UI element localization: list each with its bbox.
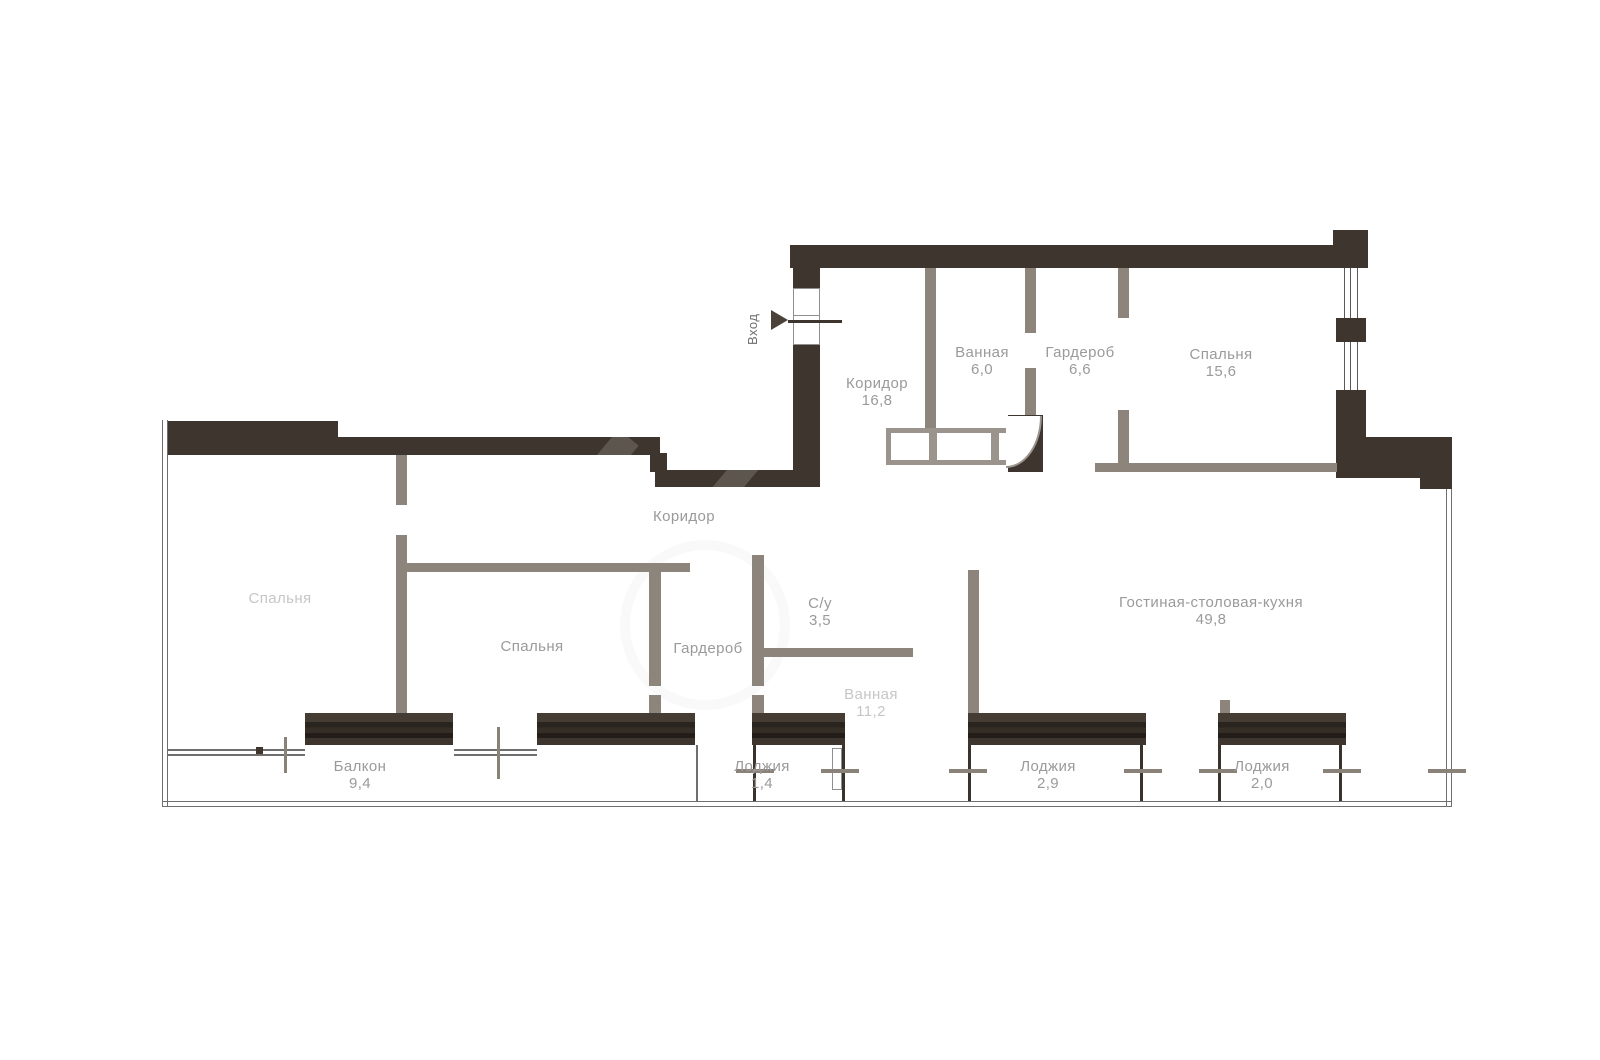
- room-name: Спальня: [500, 638, 563, 655]
- room-label-corridor-lower: Коридор: [653, 508, 715, 525]
- room-label-loggia-2: Лоджия 2,9: [1020, 758, 1076, 792]
- room-label-wc: С/у 3,5: [808, 595, 832, 629]
- closet-divider: [929, 433, 937, 460]
- window-lines: [1344, 268, 1345, 318]
- wall-wardrobe-right: [752, 695, 764, 713]
- wall-stub: [1220, 700, 1230, 713]
- room-label-wardrobe-upper: Гардероб 6,6: [1045, 344, 1114, 378]
- wall-bedroom-divider: [396, 535, 407, 715]
- room-name: С/у: [808, 595, 832, 612]
- room-name: Коридор: [653, 508, 715, 525]
- window-wall-balcony: [305, 713, 453, 745]
- window-lines: [1344, 342, 1345, 390]
- room-label-bathroom-upper: Ванная 6,0: [955, 344, 1009, 378]
- room-name: Гостиная-столовая-кухня: [1119, 594, 1303, 611]
- room-name: Ванная: [844, 686, 898, 703]
- floor-plan: Вход Коридор 16,8 Ванная 6,0: [0, 0, 1600, 1060]
- room-label-living: Гостиная-столовая-кухня 49,8: [1119, 594, 1303, 628]
- room-area: 1,4: [734, 775, 790, 792]
- boundary-bottom: [162, 806, 1452, 807]
- wall-wardrobe-left: [649, 695, 661, 713]
- room-area: 49,8: [1119, 611, 1303, 628]
- room-name: Лоджия: [734, 758, 790, 775]
- glazing-post: [256, 747, 263, 754]
- wall-bedroom-divider: [396, 455, 407, 505]
- room-label-bedroom-2: Спальня: [500, 638, 563, 655]
- room-area: 2,9: [1020, 775, 1076, 792]
- entrance-label: Вход: [745, 293, 760, 345]
- boundary-left: [162, 420, 163, 806]
- window-lines: [1357, 268, 1358, 318]
- wall-wardrobe-bedroom: [1118, 268, 1129, 318]
- room-label-loggia-3: Лоджия 2,0: [1234, 758, 1290, 792]
- wall-top-lower: [168, 421, 338, 455]
- room-area: 9,4: [334, 775, 387, 792]
- room-name: Балкон: [334, 758, 387, 775]
- wall-wardrobe-bedroom: [1118, 410, 1129, 465]
- wall-pier-right: [1336, 318, 1366, 342]
- glazing-line: [454, 749, 537, 751]
- closet-divider: [991, 433, 999, 460]
- room-label-balcony: Балкон 9,4: [334, 758, 387, 792]
- room-name: Ванная: [955, 344, 1009, 361]
- room-label-bathroom-lower: Ванная 11,2: [844, 686, 898, 720]
- room-name: Гардероб: [1045, 344, 1114, 361]
- watermark-circle: [620, 540, 790, 710]
- room-area: 6,0: [955, 361, 1009, 378]
- wall-step: [650, 453, 667, 472]
- window-wall-loggia2: [968, 713, 1146, 745]
- wall-living-west: [968, 570, 979, 713]
- wall-left-upper: [793, 343, 820, 487]
- window-wall-loggia1: [752, 713, 845, 745]
- wall-corner-right: [1336, 390, 1366, 440]
- room-label-wardrobe-lower: Гардероб: [673, 640, 742, 657]
- wall-corner-right2: [1420, 437, 1452, 489]
- tick-mark: [1428, 769, 1466, 773]
- room-area: 11,2: [844, 703, 898, 720]
- tick-mark: [284, 737, 287, 773]
- tick-mark: [1199, 769, 1237, 773]
- room-area: 2,0: [1234, 775, 1290, 792]
- wall-corridor-bath: [925, 268, 936, 432]
- boundary-right: [1446, 480, 1447, 807]
- wall-band-right: [1336, 437, 1426, 478]
- window-lines: [1350, 268, 1351, 318]
- room-label-bedroom-upper: Спальня 15,6: [1189, 346, 1252, 380]
- wall-top-upper: [790, 245, 1336, 268]
- room-label-loggia-1: Лоджия 1,4: [734, 758, 790, 792]
- glazing-line: [454, 754, 537, 756]
- tick-mark: [949, 769, 987, 773]
- wall-bath-wardrobe: [1025, 268, 1036, 333]
- tick-mark: [497, 727, 500, 779]
- wall-bath-wardrobe: [1025, 368, 1036, 418]
- room-area: 6,6: [1045, 361, 1114, 378]
- room-name: Коридор: [846, 375, 908, 392]
- room-name: Спальня: [1189, 346, 1252, 363]
- room-area: 3,5: [808, 612, 832, 629]
- room-label-corridor-upper: Коридор 16,8: [846, 375, 908, 409]
- tick-mark: [1323, 769, 1361, 773]
- wall-bedroom-south: [1095, 463, 1337, 472]
- window-wall-loggia3: [1218, 713, 1346, 745]
- room-name: Спальня: [248, 590, 311, 607]
- entrance-line: [788, 320, 842, 323]
- room-area: 15,6: [1189, 363, 1252, 380]
- window-lines: [1350, 342, 1351, 390]
- balcony-end-line: [696, 745, 698, 801]
- wall-corner-topright: [1333, 230, 1368, 268]
- window-wall: [537, 713, 695, 745]
- room-name: Лоджия: [1020, 758, 1076, 775]
- window-lines: [1357, 342, 1358, 390]
- boundary-right: [1451, 480, 1452, 807]
- room-name: Гардероб: [673, 640, 742, 657]
- wall-left-upper: [793, 245, 820, 292]
- entrance-arrow-icon: [771, 310, 788, 330]
- room-area: 16,8: [846, 392, 908, 409]
- tick-mark: [1124, 769, 1162, 773]
- room-name: Лоджия: [1234, 758, 1290, 775]
- tick-mark: [821, 769, 859, 773]
- closet-unit: [886, 428, 1013, 465]
- entrance-door: [793, 288, 820, 317]
- room-label-bedroom-1: Спальня: [248, 590, 311, 607]
- boundary-bottom: [162, 801, 1452, 802]
